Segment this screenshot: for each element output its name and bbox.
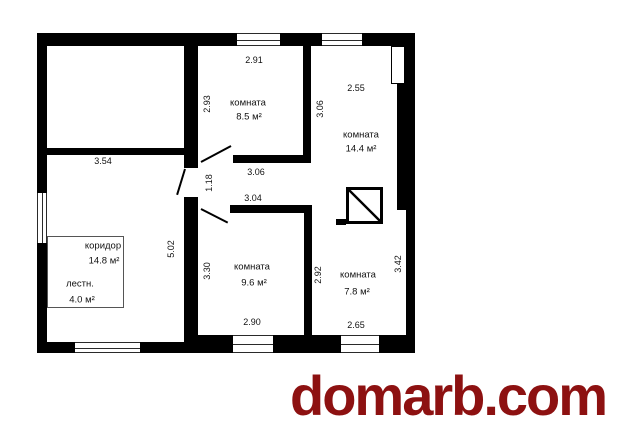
wall-corridor-lower <box>184 197 198 342</box>
vent-shaft-icon <box>346 187 383 224</box>
dim-room85-width: 2.91 <box>245 55 263 65</box>
room78-area: 7.8 м² <box>344 287 370 298</box>
window-top-2-icon <box>322 33 362 46</box>
dim-room96-height: 3.30 <box>202 262 212 280</box>
wall-room85-bottom <box>233 155 310 163</box>
wall-corridor-upper <box>184 46 198 168</box>
window-bottom-2-icon <box>233 335 273 353</box>
door-corridor-icon <box>176 169 186 195</box>
room85-area: 8.5 м² <box>236 112 262 123</box>
door-room96-icon <box>201 208 229 223</box>
room78-name: комната <box>340 270 376 281</box>
wall-right-lower <box>406 210 415 353</box>
dim-door-opening: 1.18 <box>204 174 214 192</box>
door-room85-icon <box>201 145 232 163</box>
dim-room78-left-height: 2.92 <box>313 266 323 284</box>
room144-name: комната <box>343 130 379 141</box>
watermark-text: domarb.com <box>290 371 606 421</box>
dim-corridor-height: 5.02 <box>166 240 176 258</box>
dim-passage-bottom: 3.04 <box>244 193 262 203</box>
dim-room78-width: 2.65 <box>347 320 365 330</box>
dim-room85-height: 2.93 <box>202 95 212 113</box>
wall-vent-stub <box>336 219 346 225</box>
wall-room85-right <box>303 46 311 163</box>
window-bottom-3-icon <box>341 335 379 353</box>
room85-name: комната <box>230 98 266 109</box>
wall-room96-right <box>304 205 312 335</box>
floor-plan-image: 3.54 комната 8.5 м² 2.91 2.93 комната 14… <box>0 0 630 443</box>
dim-room78-right-height: 3.42 <box>393 255 403 273</box>
dim-room144-height: 3.06 <box>315 100 325 118</box>
wall-bottom-inner <box>184 335 415 342</box>
dim-passage-top: 3.06 <box>247 167 265 177</box>
dim-topleft-width: 3.54 <box>94 156 112 166</box>
dim-room96-width: 2.90 <box>243 317 261 327</box>
window-top-1-icon <box>237 33 280 46</box>
wall-topleft-room-bottom <box>47 148 184 155</box>
window-bottom-1-icon <box>75 342 140 353</box>
stairs-area-outline <box>47 236 124 308</box>
room96-area: 9.6 м² <box>241 278 267 289</box>
dim-room144-width: 2.55 <box>347 83 365 93</box>
room96-name: комната <box>234 262 270 273</box>
window-left-icon <box>37 193 47 243</box>
room144-area: 14.4 м² <box>346 144 377 155</box>
wall-room96-top <box>230 205 312 213</box>
wall-niche-icon <box>391 46 405 84</box>
